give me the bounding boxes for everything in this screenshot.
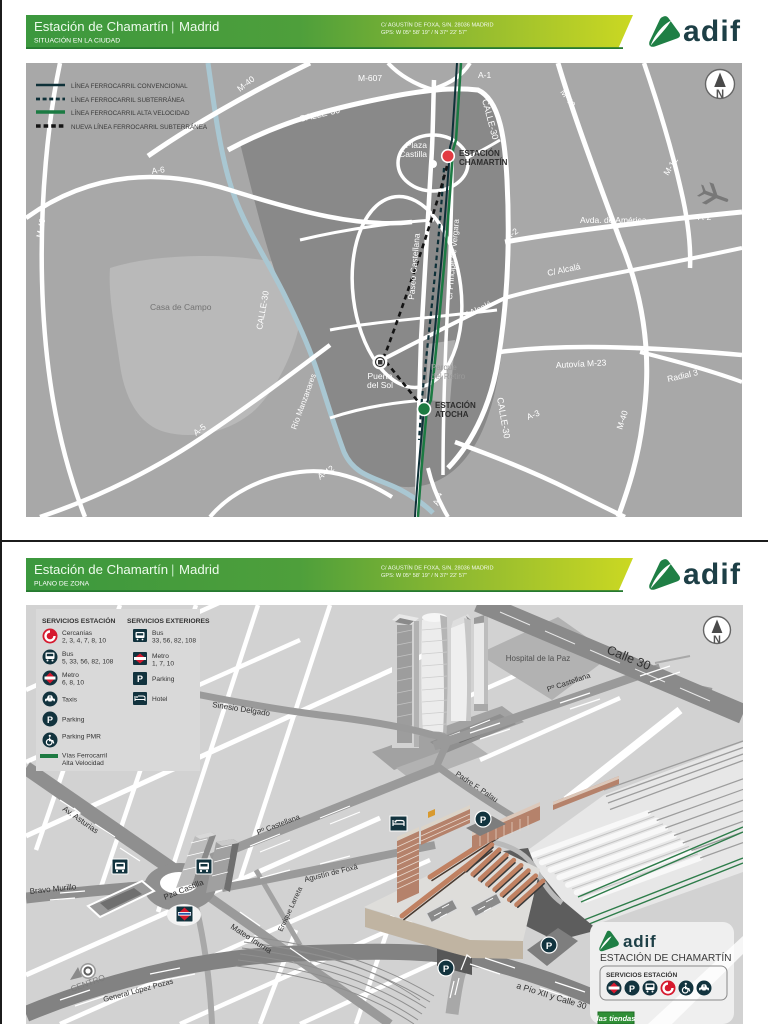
svg-text:P: P xyxy=(137,674,143,684)
svg-text:adif: adif xyxy=(683,558,741,591)
svg-text:Madrid: Madrid xyxy=(179,19,219,34)
svg-text:P: P xyxy=(629,984,635,994)
svg-text:GPS: W 05° 58’ 19” / N 37° 22’: GPS: W 05° 58’ 19” / N 37° 22’ 57” xyxy=(381,30,467,36)
svg-text:Parking: Parking xyxy=(152,676,175,683)
svg-text:ESTACIÓN: ESTACIÓN xyxy=(459,149,500,158)
svg-text:LÍNEA FERROCARRIL SUBTERRÁNEA: LÍNEA FERROCARRIL SUBTERRÁNEA xyxy=(71,95,185,104)
svg-text:2, 3, 4, 7, 8, 10: 2, 3, 4, 7, 8, 10 xyxy=(62,638,106,645)
svg-text:N: N xyxy=(713,634,721,646)
svg-text:ESTACIÓN DE CHAMARTÍN: ESTACIÓN DE CHAMARTÍN xyxy=(600,951,732,964)
svg-text:|: | xyxy=(171,19,174,34)
svg-text:Avda. de América: Avda. de América xyxy=(580,215,647,225)
svg-text:del Sol: del Sol xyxy=(367,380,393,390)
svg-text:LÍNEA FERROCARRIL CONVENCIONAL: LÍNEA FERROCARRIL CONVENCIONAL xyxy=(71,81,188,90)
svg-text:Taxis: Taxis xyxy=(62,697,78,704)
svg-text:N: N xyxy=(716,89,724,101)
svg-text:5, 33, 56, 82, 108: 5, 33, 56, 82, 108 xyxy=(62,659,114,666)
svg-text:Estación de Chamartín: Estación de Chamartín xyxy=(34,562,168,577)
svg-text:Estación de Chamartín: Estación de Chamartín xyxy=(34,19,168,34)
svg-text:GPS: W 05° 58’ 19” / N 37° 22’: GPS: W 05° 58’ 19” / N 37° 22’ 57” xyxy=(381,573,467,579)
svg-text:A-2: A-2 xyxy=(698,212,712,222)
svg-text:Bus: Bus xyxy=(152,630,164,637)
svg-text:CHAMARTÍN: CHAMARTÍN xyxy=(459,158,508,167)
svg-text:P: P xyxy=(546,941,553,952)
svg-text:C/ AGUSTÍN DE FOXA, S/N. 28036: C/ AGUSTÍN DE FOXA, S/N. 28036 MADRID xyxy=(381,565,494,572)
svg-text:NUEVA LÍNEA FERROCARRIL SUBTER: NUEVA LÍNEA FERROCARRIL SUBTERRÁNEA xyxy=(71,122,208,131)
svg-text:C/ AGUSTÍN DE FOXA, S/N. 28036: C/ AGUSTÍN DE FOXA, S/N. 28036 MADRID xyxy=(381,22,494,29)
svg-text:Bus: Bus xyxy=(62,651,74,658)
svg-text:M-607: M-607 xyxy=(358,73,382,83)
svg-text:Hotel: Hotel xyxy=(152,696,168,703)
svg-text:1, 7, 10: 1, 7, 10 xyxy=(152,661,174,668)
svg-text:Metro: Metro xyxy=(62,672,79,679)
svg-text:SERVICIOS ESTACIÓN: SERVICIOS ESTACIÓN xyxy=(42,616,115,625)
svg-text:6, 8, 10: 6, 8, 10 xyxy=(62,680,84,687)
svg-text:P: P xyxy=(47,715,53,725)
svg-text:Cercanías: Cercanías xyxy=(62,630,93,637)
svg-text:Hospital de la Paz: Hospital de la Paz xyxy=(506,654,570,663)
svg-text:Metro: Metro xyxy=(152,653,169,660)
svg-text:ESTACIÓN: ESTACIÓN xyxy=(435,401,476,410)
svg-text:A-1: A-1 xyxy=(478,70,492,80)
svg-text:ATOCHA: ATOCHA xyxy=(435,410,469,419)
svg-text:LÍNEA FERROCARRIL ALTA VELOCID: LÍNEA FERROCARRIL ALTA VELOCIDAD xyxy=(71,108,190,117)
svg-text:PLANO DE ZONA: PLANO DE ZONA xyxy=(34,581,90,588)
svg-text:SITUACIÓN EN LA CIUDAD: SITUACIÓN EN LA CIUDAD xyxy=(34,36,120,45)
svg-text:Parking PMR: Parking PMR xyxy=(62,734,101,741)
svg-text:Parking: Parking xyxy=(62,717,85,724)
svg-text:Alta Velocidad: Alta Velocidad xyxy=(62,760,104,767)
svg-text:adif: adif xyxy=(683,15,741,48)
svg-text:adif: adif xyxy=(623,932,656,951)
svg-text:Vías Ferrocarril: Vías Ferrocarril xyxy=(62,753,108,760)
svg-text:|: | xyxy=(171,562,174,577)
svg-text:SERVICIOS EXTERIORES: SERVICIOS EXTERIORES xyxy=(127,618,210,625)
svg-text:Madrid: Madrid xyxy=(179,562,219,577)
svg-text:P: P xyxy=(443,964,450,975)
svg-text:33, 56, 82, 108: 33, 56, 82, 108 xyxy=(152,638,196,645)
svg-text:Casa de Campo: Casa de Campo xyxy=(150,302,212,312)
svg-text:del Retiro: del Retiro xyxy=(431,372,466,381)
svg-text:Parque: Parque xyxy=(431,363,457,372)
svg-text:Castilla: Castilla xyxy=(399,149,427,159)
svg-text:P: P xyxy=(480,815,487,826)
svg-text:las tiendas: las tiendas xyxy=(597,1014,636,1023)
svg-text:SERVICIOS ESTACIÓN: SERVICIOS ESTACIÓN xyxy=(606,970,677,979)
svg-text:A-6: A-6 xyxy=(151,164,166,176)
